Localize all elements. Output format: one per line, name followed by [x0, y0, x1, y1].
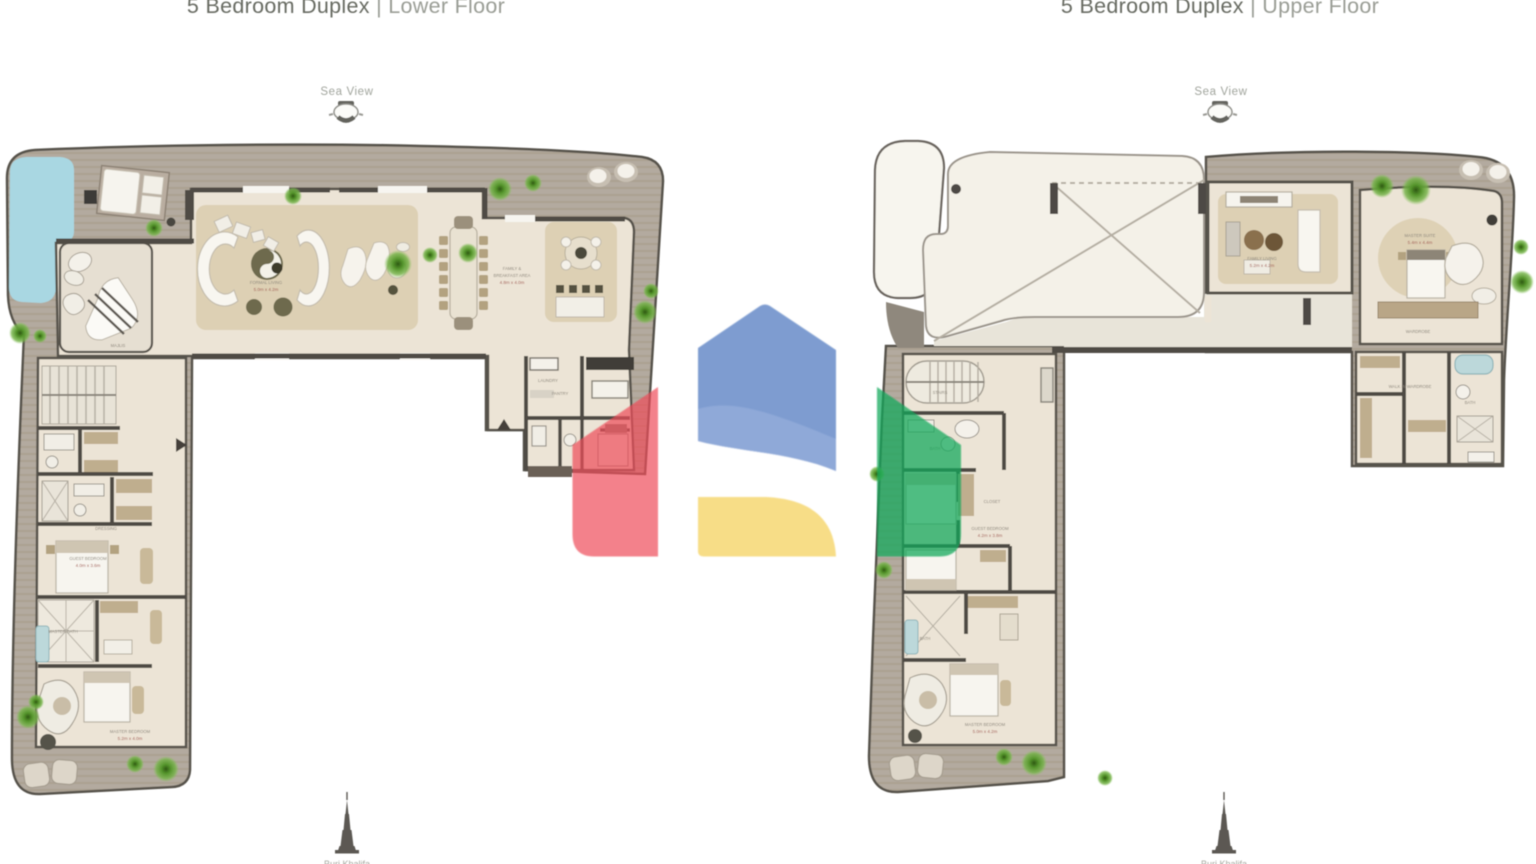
svg-text:GUEST BEDROOM: GUEST BEDROOM	[69, 556, 107, 561]
svg-text:GUEST BEDROOM: GUEST BEDROOM	[971, 526, 1009, 531]
svg-text:Sea View: Sea View	[1194, 86, 1247, 98]
svg-text:BATH: BATH	[920, 636, 931, 641]
svg-text:5.2m x 4.2m: 5.2m x 4.2m	[1250, 263, 1275, 268]
svg-text:Sea View: Sea View	[320, 86, 373, 98]
svg-text:MASTER BEDROOM: MASTER BEDROOM	[110, 729, 151, 734]
svg-text:MAJLIS: MAJLIS	[111, 343, 126, 348]
svg-text:MASTER SUITE: MASTER SUITE	[1405, 233, 1436, 238]
svg-text:Burj Khalifa: Burj Khalifa	[324, 859, 370, 864]
svg-text:WALK IN WARDROBE: WALK IN WARDROBE	[1389, 384, 1432, 389]
svg-text:FAMILY LIVING: FAMILY LIVING	[1247, 256, 1276, 261]
svg-text:4.8m x 4.0m: 4.8m x 4.0m	[500, 280, 525, 285]
svg-text:CLOSET: CLOSET	[984, 499, 1001, 504]
svg-text:Burj Khalifa: Burj Khalifa	[1201, 859, 1247, 864]
svg-text:5.2m x 4.0m: 5.2m x 4.0m	[118, 736, 143, 741]
svg-text:5.0m x 4.2m: 5.0m x 4.2m	[254, 287, 279, 292]
svg-text:FORMAL LIVING: FORMAL LIVING	[250, 280, 282, 285]
svg-text:PANTRY: PANTRY	[552, 391, 569, 396]
svg-text:5.0m x 4.2m: 5.0m x 4.2m	[973, 729, 998, 734]
svg-text:STAIRS: STAIRS	[933, 390, 948, 395]
svg-text:FAMILY &: FAMILY &	[503, 266, 522, 271]
svg-text:MASTER BEDROOM: MASTER BEDROOM	[965, 722, 1006, 727]
svg-text:BATH: BATH	[1465, 400, 1476, 405]
svg-text:DRESSING: DRESSING	[95, 526, 117, 531]
svg-text:5 Bedroom Duplex | Upper Floor: 5 Bedroom Duplex | Upper Floor	[1061, 0, 1379, 18]
svg-text:BREAKFAST AREA: BREAKFAST AREA	[494, 273, 531, 278]
svg-text:LAUNDRY: LAUNDRY	[538, 378, 558, 383]
svg-text:WARDROBE: WARDROBE	[1406, 329, 1431, 334]
svg-text:5.4m x 4.4m: 5.4m x 4.4m	[1408, 240, 1433, 245]
svg-text:MASTER BATH: MASTER BATH	[48, 629, 77, 634]
svg-text:4.2m x 3.8m: 4.2m x 3.8m	[978, 533, 1003, 538]
svg-text:4.0m x 3.6m: 4.0m x 3.6m	[76, 563, 101, 568]
svg-text:5 Bedroom Duplex | Lower Floor: 5 Bedroom Duplex | Lower Floor	[187, 0, 505, 18]
